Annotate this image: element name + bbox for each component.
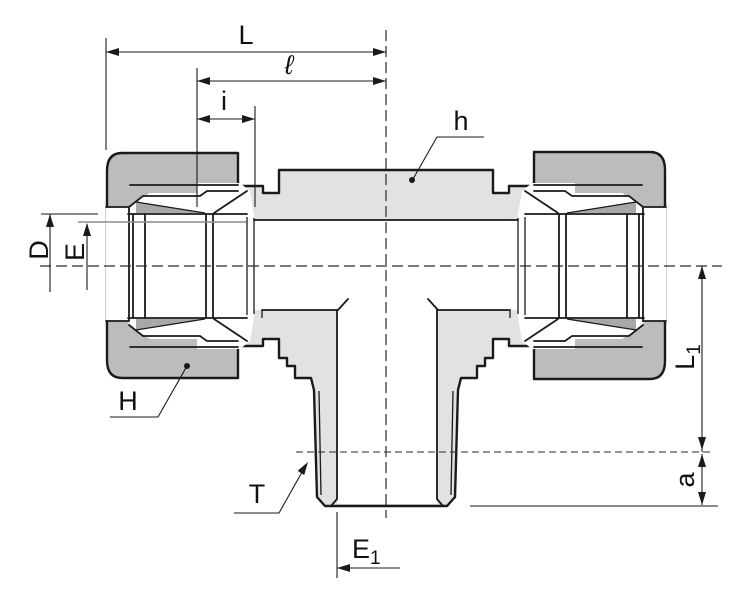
dim-L-label: L [238, 20, 253, 50]
arrowhead [106, 48, 119, 56]
branch-tee-diagram: L ℓ i D E h H [0, 0, 734, 600]
arrowhead [373, 77, 386, 85]
left-nut-face-recess [106, 207, 129, 321]
dim-E1: E1 [337, 512, 400, 578]
leader-dot [409, 177, 415, 183]
dim-T-label: T [249, 479, 266, 509]
arrowhead [698, 437, 706, 450]
arrowhead [197, 77, 210, 85]
dim-E1-label: E1 [352, 534, 381, 569]
dim-i-label: i [221, 86, 227, 116]
arrowhead [698, 266, 706, 279]
arrowhead [698, 492, 706, 505]
dim-a: a [470, 454, 718, 506]
dim-L: L [106, 20, 386, 150]
dim-D-label: D [24, 240, 54, 260]
dim-h-label: h [453, 106, 468, 136]
arrowhead [337, 564, 350, 572]
arrowhead [197, 115, 210, 123]
arrowhead [242, 115, 255, 123]
dim-ell-label: ℓ [284, 50, 295, 80]
arrowhead [298, 462, 308, 475]
dim-L1-label: L1 [670, 344, 705, 370]
arrowhead [46, 214, 54, 227]
drawing-canvas: L ℓ i D E h H [0, 0, 734, 600]
branch-bore [337, 310, 437, 504]
dim-H-label: H [118, 386, 138, 416]
leader-line [234, 465, 306, 513]
dim-E-label: E [60, 243, 90, 261]
label-T-leader: T [234, 462, 308, 513]
right-nut-face-recess [643, 207, 666, 321]
arrowhead [83, 223, 91, 236]
arrowhead [698, 454, 706, 467]
dim-a-label: a [670, 472, 700, 488]
leader-dot [184, 363, 190, 369]
arrowhead [373, 48, 386, 56]
dim-L1: L1 [670, 266, 706, 452]
